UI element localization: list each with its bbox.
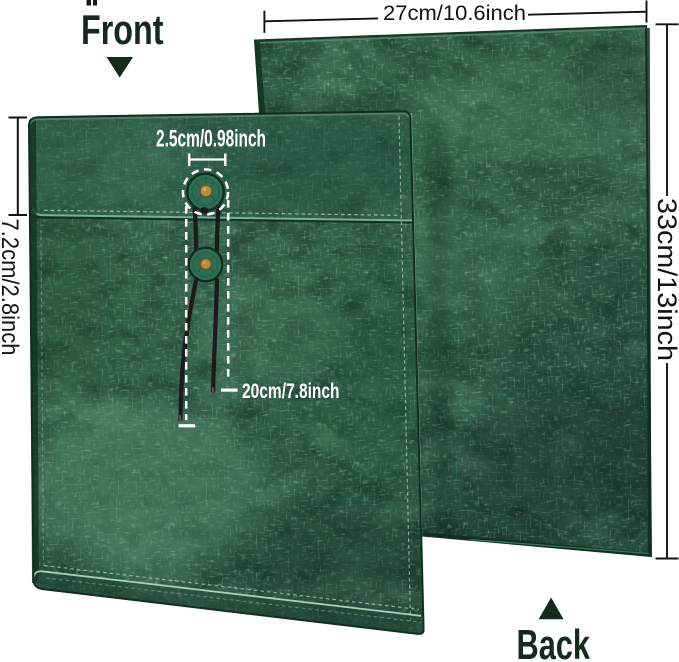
svg-text:20cm/7.8inch: 20cm/7.8inch [242,380,340,403]
svg-text:Front: Front [81,6,164,53]
svg-text:7.2cm/2.8inch: 7.2cm/2.8inch [0,219,23,356]
svg-text:33cm/13inch: 33cm/13inch [652,198,679,361]
svg-text:Back: Back [517,621,591,662]
svg-text:2.5cm/0.98inch: 2.5cm/0.98inch [156,126,266,153]
svg-text:27cm/10.6inch: 27cm/10.6inch [383,2,526,25]
